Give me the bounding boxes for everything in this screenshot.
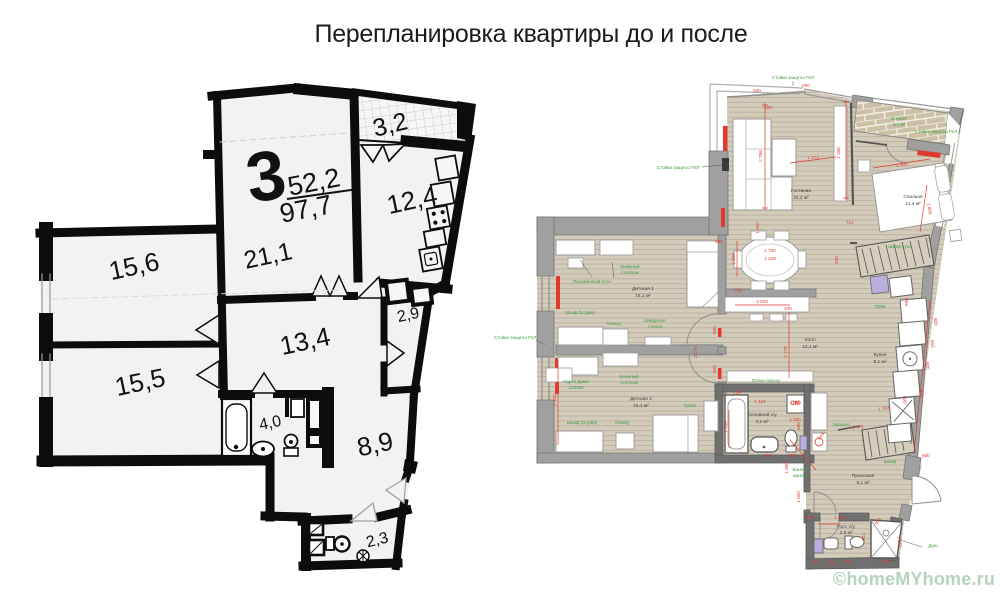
svg-text:6,1 м²: 6,1 м²: [857, 480, 870, 486]
svg-text:Тумба: Тумба: [684, 403, 697, 408]
svg-text:1 600: 1 600: [731, 253, 736, 265]
svg-text:800: 800: [764, 105, 772, 110]
svg-text:15,1 м²: 15,1 м²: [633, 403, 649, 409]
svg-text:3,1 м²: 3,1 м²: [893, 122, 906, 127]
svg-text:Книжный: Книжный: [620, 263, 640, 269]
svg-text:500: 500: [753, 88, 761, 93]
svg-text:Стойки защиты ГКЛ: Стойки защиты ГКЛ: [915, 128, 957, 134]
svg-text:800: 800: [712, 326, 717, 334]
svg-text:2 270: 2 270: [693, 346, 698, 358]
svg-text:стеллаж: стеллаж: [621, 270, 640, 275]
svg-text:2 336: 2 336: [836, 147, 841, 159]
svg-text:Шведская: Шведская: [644, 318, 666, 323]
svg-text:22,2 м²: 22,2 м²: [793, 195, 809, 201]
svg-text:Балкон: Балкон: [891, 116, 907, 121]
svg-text:800: 800: [806, 515, 814, 520]
svg-text:600: 600: [904, 298, 909, 306]
svg-text:1 050: 1 050: [789, 417, 801, 422]
svg-text:Шкаф 3х двер: Шкаф 3х двер: [565, 310, 596, 315]
svg-text:2 766: 2 766: [758, 150, 763, 162]
svg-text:стенка: стенка: [648, 324, 663, 329]
svg-text:2 228: 2 228: [764, 256, 776, 261]
svg-text:800: 800: [764, 453, 772, 458]
svg-text:1 000: 1 000: [784, 462, 789, 474]
svg-text:Комод: Комод: [607, 321, 621, 326]
svg-text:Гост. с/у: Гост. с/у: [837, 524, 855, 530]
svg-text:Комод: Комод: [615, 420, 629, 425]
svg-text:11,4 м²: 11,4 м²: [905, 201, 921, 207]
svg-text:зеркало: зеркало: [792, 473, 810, 478]
svg-text:Стойки защиты ГКЛ: Стойки защиты ГКЛ: [494, 334, 536, 340]
svg-text:730: 730: [861, 533, 866, 541]
svg-text:Спальня: Спальня: [903, 194, 923, 200]
svg-text:1 700: 1 700: [764, 248, 776, 253]
svg-text:Основной с/у: Основной с/у: [747, 411, 777, 418]
svg-text:Стойки защиты ГКЛ: Стойки защиты ГКЛ: [657, 164, 699, 170]
svg-text:653: 653: [929, 340, 935, 349]
svg-text:Книжный: Книжный: [619, 373, 639, 379]
svg-text:Душ: Душ: [928, 543, 938, 548]
svg-text:Стойки защиты ГКЛ: Стойки защиты ГКЛ: [772, 74, 814, 80]
svg-text:500: 500: [834, 256, 839, 264]
svg-text:791: 791: [811, 560, 819, 565]
svg-text:600: 600: [796, 422, 801, 430]
svg-text:1 300: 1 300: [755, 222, 760, 234]
svg-text:2 520: 2 520: [756, 299, 768, 304]
svg-text:800: 800: [932, 318, 938, 327]
svg-text:466: 466: [882, 559, 890, 564]
svg-text:660: 660: [922, 452, 931, 458]
svg-text:500: 500: [844, 559, 852, 564]
svg-text:4,2 м²: 4,2 м²: [756, 419, 769, 425]
svg-text:8,1 м²: 8,1 м²: [874, 359, 887, 365]
svg-text:Письменный стол: Письменный стол: [573, 278, 611, 284]
svg-text:Шкаф: Шкаф: [884, 459, 897, 464]
svg-text:Детская 1: Детская 1: [632, 286, 654, 292]
svg-text:Прихожая: Прихожая: [852, 473, 875, 479]
svg-text:Гостиная: Гостиная: [791, 188, 812, 194]
svg-text:1 413: 1 413: [834, 515, 846, 520]
svg-text:16,1 м²: 16,1 м²: [635, 293, 651, 299]
svg-text:СМ: СМ: [790, 400, 800, 407]
svg-text:800: 800: [712, 365, 717, 373]
svg-text:800: 800: [715, 239, 723, 244]
svg-text:ПММ: ПММ: [875, 304, 886, 309]
svg-text:Шкаф 3х двер: Шкаф 3х двер: [567, 420, 598, 425]
svg-text:стеллаж: стеллаж: [620, 380, 639, 385]
svg-text:700: 700: [734, 288, 742, 293]
svg-text:Кухня: Кухня: [874, 352, 887, 358]
svg-text:800: 800: [802, 83, 810, 88]
svg-text:1 700: 1 700: [723, 421, 728, 433]
svg-text:Детская 2: Детская 2: [630, 396, 652, 402]
svg-text:2,5 м²: 2,5 м²: [840, 530, 853, 536]
svg-text:Парта Дами: Парта Дами: [563, 379, 589, 384]
svg-text:2 270: 2 270: [783, 346, 788, 358]
svg-text:Шкаф-купе: Шкаф-купе: [888, 244, 912, 249]
svg-text:700: 700: [733, 390, 741, 395]
svg-text:Зеркало: Зеркало: [832, 422, 850, 427]
svg-text:1 113: 1 113: [754, 399, 766, 404]
svg-text:400: 400: [784, 306, 792, 311]
svg-text:2 930: 2 930: [552, 394, 557, 406]
svg-text:1 000: 1 000: [796, 491, 801, 503]
svg-text:900: 900: [788, 453, 796, 458]
svg-text:Ванная,: Ванная,: [792, 467, 809, 472]
svg-text:1 174: 1 174: [807, 155, 819, 160]
svg-text:722: 722: [827, 560, 835, 565]
svg-text:Полки сверху: Полки сверху: [752, 378, 781, 383]
svg-text:Холл: Холл: [804, 337, 816, 343]
svg-text:12,1 м²: 12,1 м²: [802, 344, 818, 350]
svg-text:120х55: 120х55: [568, 385, 584, 390]
